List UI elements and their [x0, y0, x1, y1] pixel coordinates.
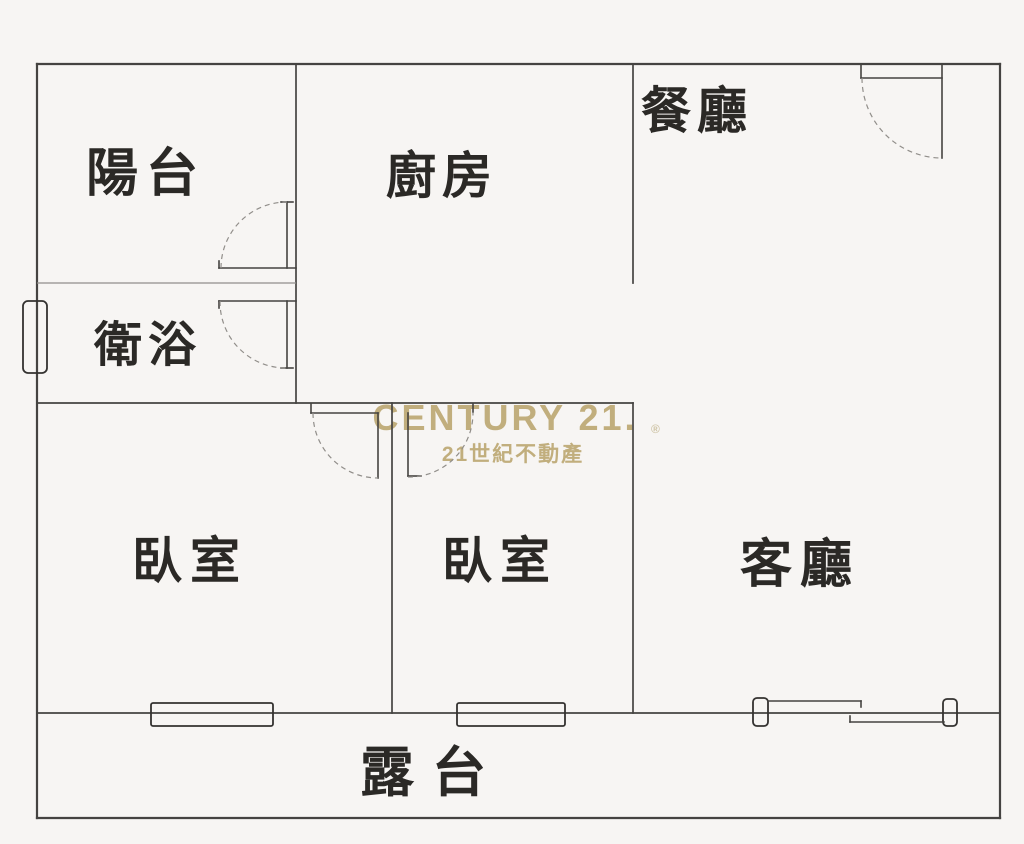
entrance-door-arc	[862, 78, 942, 158]
room-label-living: 客廳	[740, 536, 860, 594]
century21-subtitle: 21世紀不動產	[442, 442, 584, 466]
room-label-terrace: 露台	[360, 743, 504, 803]
bedroom1-window	[151, 703, 273, 726]
room-label-bathroom: 衛浴	[93, 319, 202, 372]
bathroom-door	[219, 301, 296, 368]
bedroom2-window	[457, 703, 565, 726]
room-label-balcony: 陽台	[86, 145, 206, 203]
bathroom-window	[23, 301, 47, 373]
century21-watermark: CENTURY 21. ® 21世紀不動產	[372, 397, 660, 466]
kitchen-door	[219, 202, 296, 268]
registered-trademark-icon: ®	[651, 422, 660, 436]
bathroom-door-arc	[220, 301, 287, 368]
floor-plan-page: CENTURY 21. ® 21世紀不動產	[0, 0, 1024, 844]
living-sliding-door	[753, 698, 957, 726]
floor-plan-drawing: CENTURY 21. ® 21世紀不動產	[0, 0, 1024, 844]
bedroom1-door	[311, 404, 378, 478]
room-label-bedroom1: 臥室	[132, 533, 248, 589]
room-label-bedroom2: 臥室	[442, 533, 558, 589]
room-label-dining: 餐廳	[641, 83, 753, 139]
bedroom1-door-arc	[313, 413, 378, 478]
sliding-door-left-jamb	[753, 698, 768, 726]
room-label-kitchen: 廚房	[386, 148, 498, 204]
entrance-door	[861, 64, 942, 158]
kitchen-door-arc	[221, 202, 287, 268]
